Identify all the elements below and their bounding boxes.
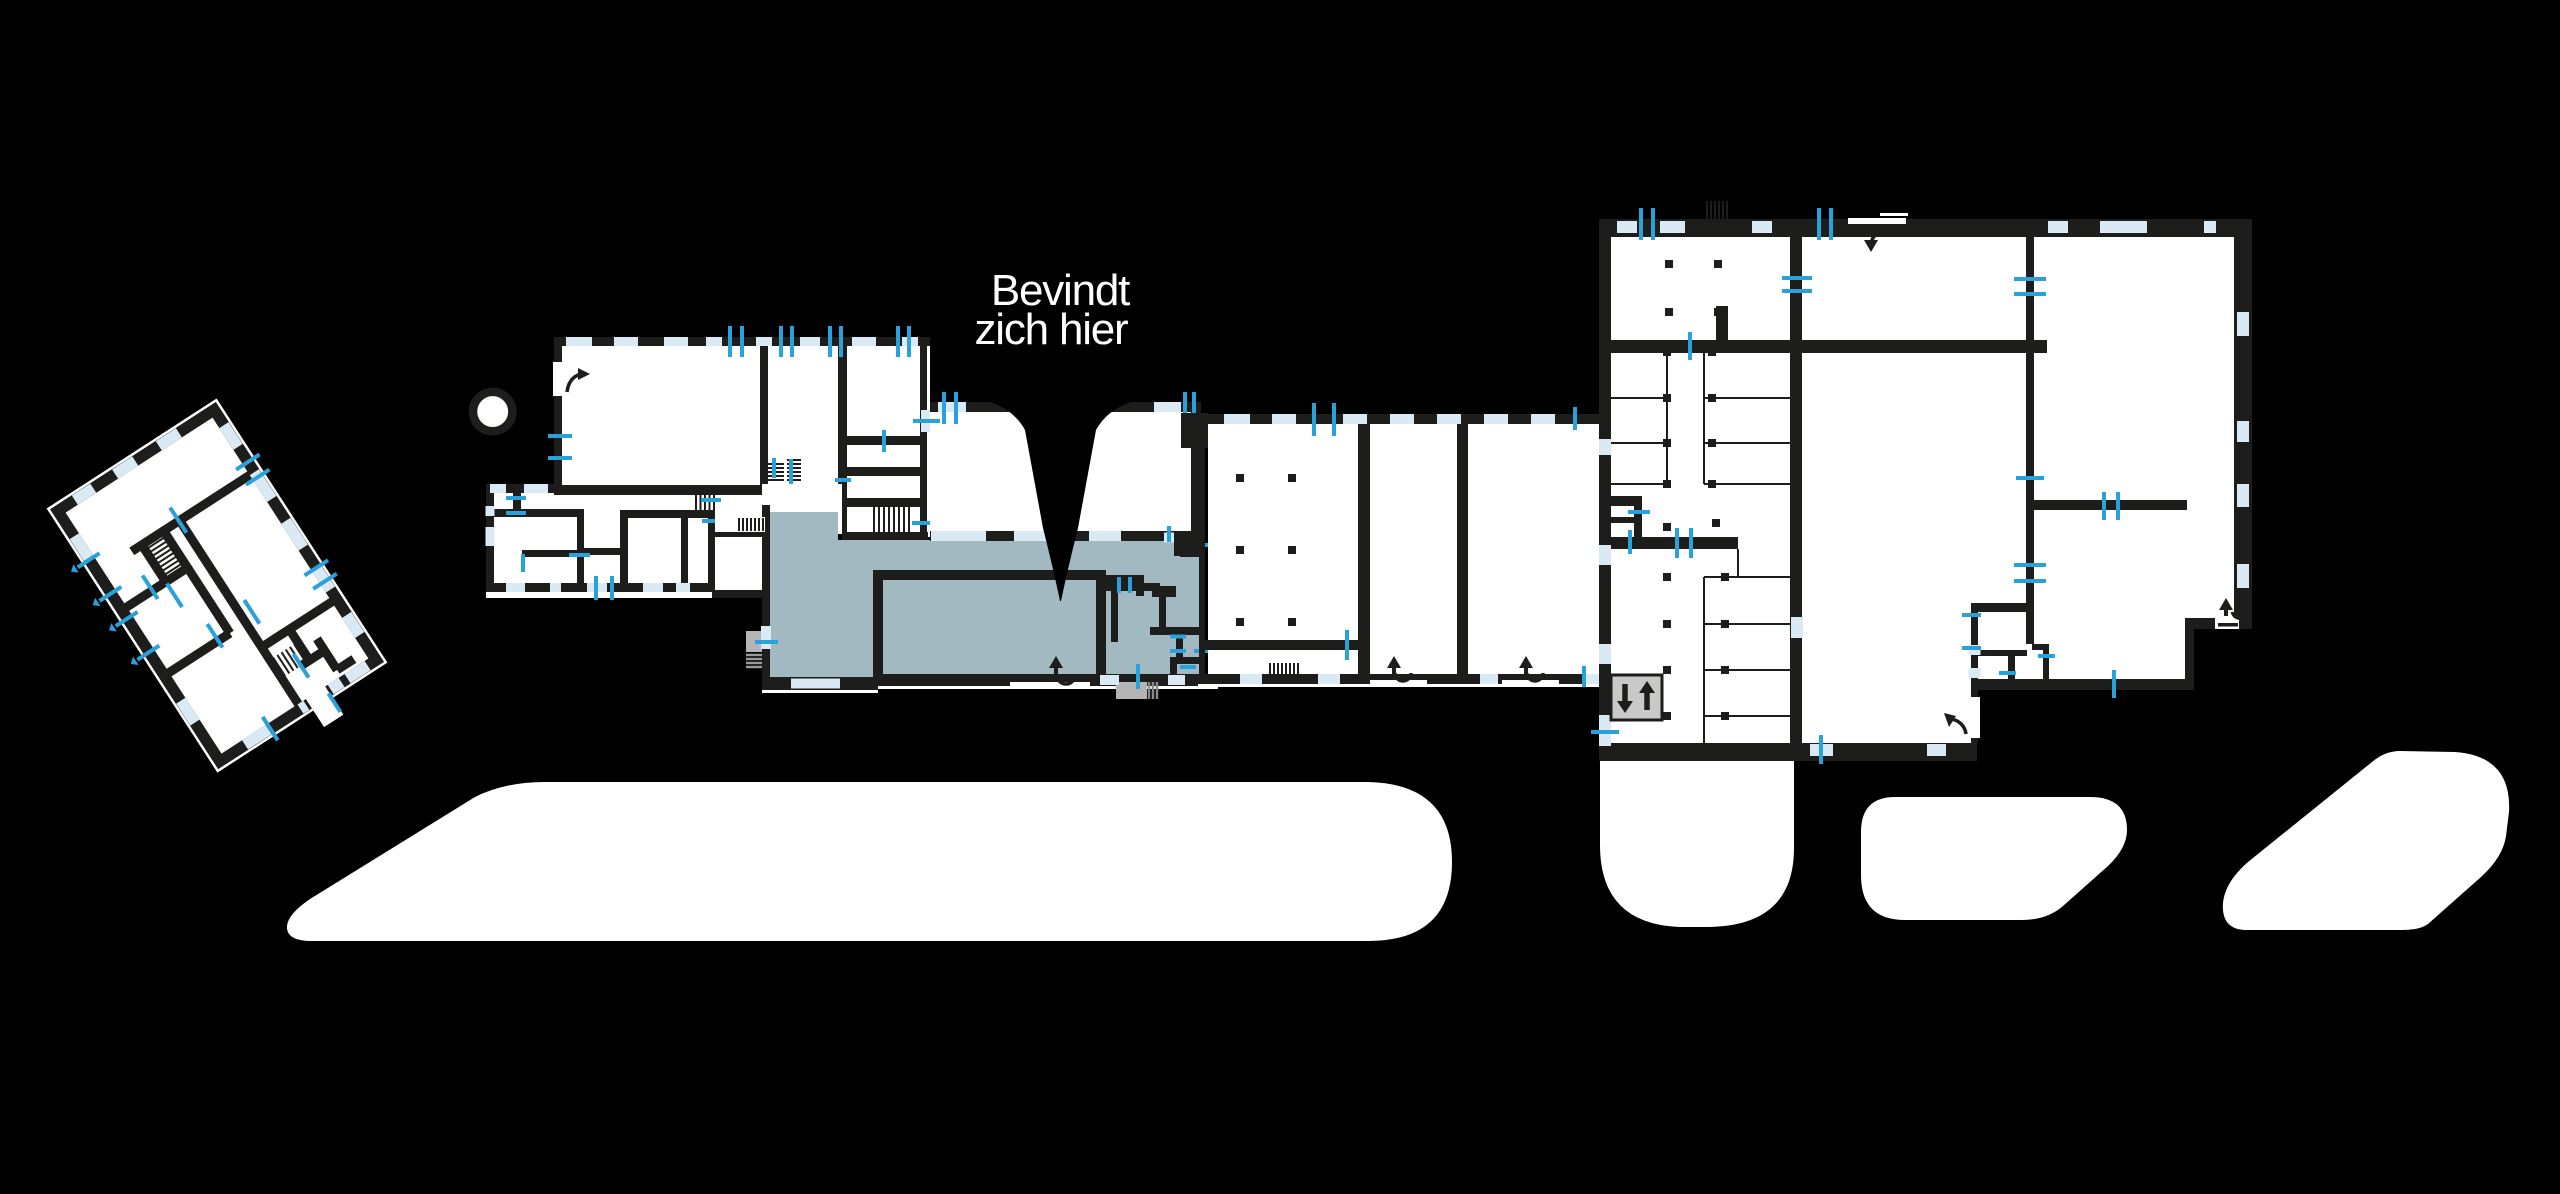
svg-text:zich hier: zich hier	[974, 305, 1128, 354]
